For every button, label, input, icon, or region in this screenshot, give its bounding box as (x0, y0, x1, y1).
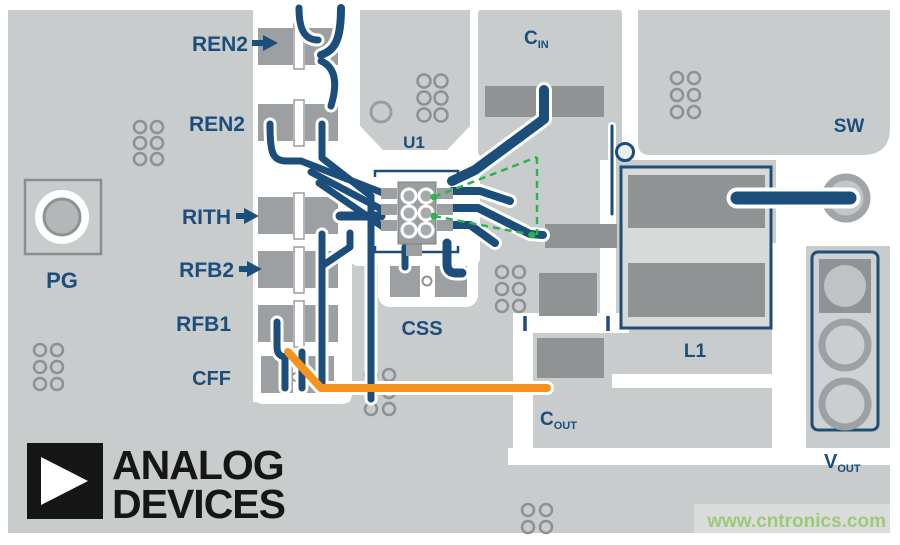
label-css: CSS (401, 318, 442, 340)
pour-bottom-left (253, 402, 517, 533)
pad-sw-node (545, 224, 617, 248)
pour-u1-island (360, 10, 470, 150)
label-cff: CFF (192, 368, 231, 390)
pad-mid (539, 273, 597, 316)
vout-pin1-hole (824, 265, 866, 307)
label-rfb2: RFB2 (179, 259, 234, 282)
label-ren2-top: REN2 (192, 33, 248, 56)
vout-connector (812, 252, 878, 430)
pg-pad-hole (44, 199, 80, 235)
adi-logo-line2: DEVICES (112, 481, 285, 527)
l1-pad-bottom (628, 263, 765, 317)
analog-devices-logo: ANALOG DEVICES (27, 442, 285, 527)
label-rfb1: RFB1 (176, 313, 231, 336)
label-rith: RITH (182, 206, 231, 229)
vout-pin2-hole (822, 322, 868, 368)
pcb-layout-screenshot: REN2 REN2 RITH RFB2 RFB1 CFF PG U1 CSS S… (0, 0, 900, 545)
label-u1: U1 (403, 133, 425, 152)
label-l1: L1 (684, 341, 707, 362)
channel-vout-left (772, 243, 806, 451)
u1-bottom-tab (406, 244, 422, 256)
label-ren2-mid: REN2 (189, 113, 245, 136)
pcb-board-svg: REN2 REN2 RITH RFB2 RFB1 CFF PG U1 CSS S… (0, 0, 900, 545)
label-pg: PG (46, 268, 78, 293)
cout-capacitor-body (537, 338, 604, 378)
silk-circle-l1 (617, 144, 634, 161)
watermark: www.cntronics.com (694, 504, 892, 534)
watermark-text: www.cntronics.com (706, 511, 886, 532)
vout-pin3-hole (822, 381, 868, 427)
channel-below-l1 (612, 374, 774, 388)
label-sw: SW (834, 116, 865, 137)
